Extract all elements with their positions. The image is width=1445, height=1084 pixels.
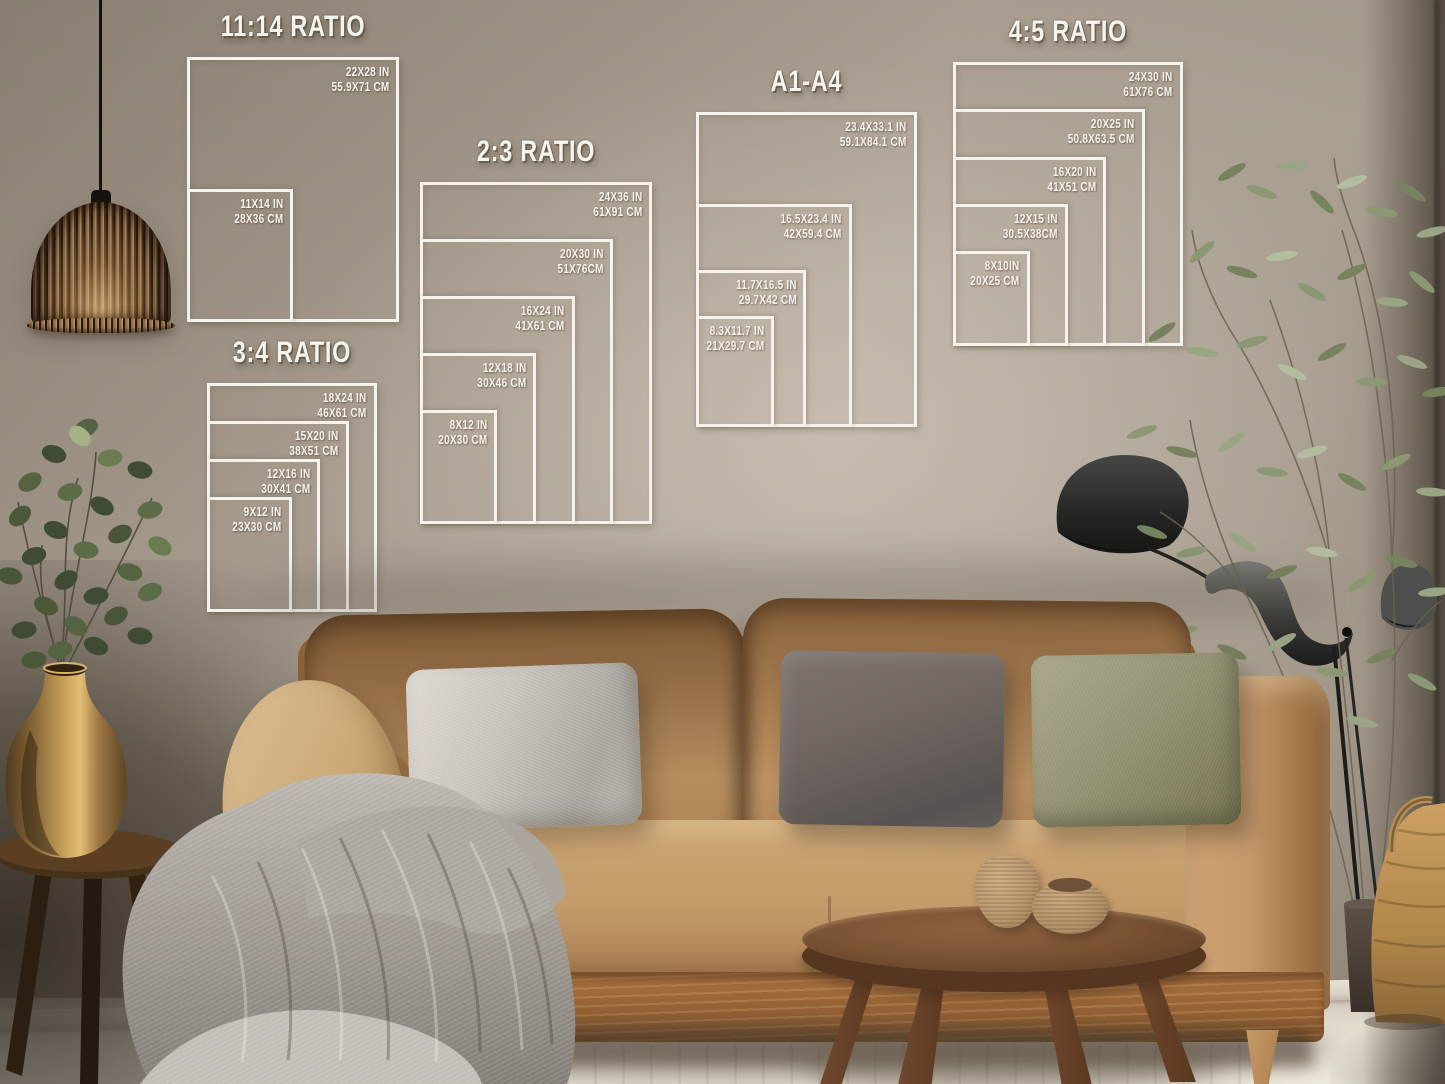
living-room-scene: 11:14 RATIO 22X28 IN55.9X71 CM11X14 IN28…	[0, 0, 1445, 1084]
diagram-title: A1-A4	[689, 65, 924, 99]
size-label-in: 16X24 IN	[516, 304, 565, 319]
size-label-in: 24X30 IN	[1124, 70, 1173, 85]
wall-corner-shadow	[1362, 0, 1445, 1084]
size-label: 12X15 IN30.5X38CM	[1003, 212, 1058, 242]
size-guide-a1-a4: A1-A4 23.4X33.1 IN59.1X84.1 CM16.5X23.4 …	[696, 112, 917, 427]
size-guide-ratio-2-3: 2:3 RATIO 24X36 IN61X91 CM20X30 IN51X76C…	[420, 182, 652, 524]
size-label: 16X20 IN41X51 CM	[1047, 165, 1096, 195]
size-label: 11.7X16.5 IN29.7X42 CM	[736, 278, 797, 308]
size-rect-8x10in: 8X10IN20X25 CM	[953, 251, 1030, 346]
size-guide-ratio-4-5: 4:5 RATIO 24X30 IN61X76 CM20X25 IN50.8X6…	[953, 62, 1183, 346]
size-label-in: 8X12 IN	[438, 418, 487, 433]
diagram-title: 2:3 RATIO	[414, 135, 657, 169]
size-label-cm: 55.9X71 CM	[331, 80, 389, 95]
size-label-in: 20X30 IN	[557, 247, 603, 262]
size-label-in: 18X24 IN	[318, 391, 367, 406]
size-label-cm: 50.8X63.5 CM	[1068, 132, 1135, 147]
ceramic-vase-mouth	[1048, 878, 1092, 892]
size-label-cm: 20X30 CM	[438, 433, 487, 448]
size-guide-ratio-11-14: 11:14 RATIO 22X28 IN55.9X71 CM11X14 IN28…	[187, 57, 399, 322]
size-label: 8.3X11.7 IN21X29.7 CM	[706, 324, 764, 354]
size-label-cm: 61X76 CM	[1124, 85, 1173, 100]
size-label-cm: 42X59.4 CM	[780, 227, 841, 242]
size-label-cm: 23X30 CM	[233, 520, 282, 535]
size-label-cm: 41X61 CM	[516, 319, 565, 334]
size-label: 20X30 IN51X76CM	[557, 247, 603, 277]
size-label-cm: 20X25 CM	[970, 274, 1019, 289]
size-label-cm: 30X41 CM	[261, 482, 310, 497]
size-label-cm: 29.7X42 CM	[736, 293, 797, 308]
pendant-cord	[99, 0, 102, 200]
size-label-in: 12X16 IN	[261, 467, 310, 482]
size-label-in: 23.4X33.1 IN	[840, 120, 907, 135]
size-label-in: 9X12 IN	[233, 505, 282, 520]
size-label-in: 8.3X11.7 IN	[706, 324, 764, 339]
size-label: 15X20 IN38X51 CM	[289, 429, 338, 459]
pillow-olive	[1031, 652, 1242, 828]
size-label: 12X18 IN30X46 CM	[477, 361, 526, 391]
size-label: 24X30 IN61X76 CM	[1124, 70, 1173, 100]
pillow-charcoal	[778, 650, 1005, 828]
diagram-title: 3:4 RATIO	[194, 336, 389, 370]
size-label-cm: 21X29.7 CM	[706, 339, 764, 354]
pillow-silver	[405, 662, 643, 832]
bottom-right-shadow	[1330, 1010, 1445, 1084]
size-label: 9X12 IN23X30 CM	[233, 505, 282, 535]
size-label-in: 22X28 IN	[331, 65, 389, 80]
size-label-cm: 59.1X84.1 CM	[840, 135, 907, 150]
size-label-in: 8X10IN	[970, 259, 1019, 274]
size-rect-8x12-in: 8X12 IN20X30 CM	[420, 410, 497, 524]
coffee-table-shadow	[800, 1042, 1220, 1084]
size-rect-8.3x11.7-in: 8.3X11.7 IN21X29.7 CM	[696, 316, 774, 427]
size-label-cm: 28X36 CM	[234, 212, 283, 227]
size-label-cm: 51X76CM	[557, 262, 603, 277]
size-label-in: 12X15 IN	[1003, 212, 1058, 227]
size-label-in: 15X20 IN	[289, 429, 338, 444]
size-label-in: 16.5X23.4 IN	[780, 212, 841, 227]
size-label-in: 11.7X16.5 IN	[736, 278, 797, 293]
size-label-cm: 41X51 CM	[1047, 180, 1096, 195]
sofa-cushion-crease	[733, 618, 751, 848]
size-label: 20X25 IN50.8X63.5 CM	[1068, 117, 1135, 147]
size-label-cm: 30X46 CM	[477, 376, 526, 391]
size-label-cm: 61X91 CM	[593, 205, 642, 220]
size-label: 18X24 IN46X61 CM	[318, 391, 367, 421]
size-label-cm: 46X61 CM	[318, 406, 367, 421]
size-label: 8X12 IN20X30 CM	[438, 418, 487, 448]
size-label-cm: 38X51 CM	[289, 444, 338, 459]
wall-corner-line	[1434, 0, 1440, 992]
size-label-in: 12X18 IN	[477, 361, 526, 376]
size-label: 16.5X23.4 IN42X59.4 CM	[780, 212, 841, 242]
size-label-in: 16X20 IN	[1047, 165, 1096, 180]
size-label: 8X10IN20X25 CM	[970, 259, 1019, 289]
size-label-in: 20X25 IN	[1068, 117, 1135, 132]
size-label: 12X16 IN30X41 CM	[261, 467, 310, 497]
diagram-title: 4:5 RATIO	[947, 15, 1189, 49]
pendant-rim	[27, 318, 175, 333]
diagram-title: 11:14 RATIO	[179, 10, 407, 44]
size-rect-11x14-in: 11X14 IN28X36 CM	[187, 189, 293, 321]
size-label-in: 11X14 IN	[234, 197, 283, 212]
size-label: 11X14 IN28X36 CM	[234, 197, 283, 227]
size-label: 24X36 IN61X91 CM	[593, 190, 642, 220]
size-label-cm: 30.5X38CM	[1003, 227, 1058, 242]
size-label: 23.4X33.1 IN59.1X84.1 CM	[840, 120, 907, 150]
size-label-in: 24X36 IN	[593, 190, 642, 205]
size-label: 16X24 IN41X61 CM	[516, 304, 565, 334]
size-label: 22X28 IN55.9X71 CM	[331, 65, 389, 95]
